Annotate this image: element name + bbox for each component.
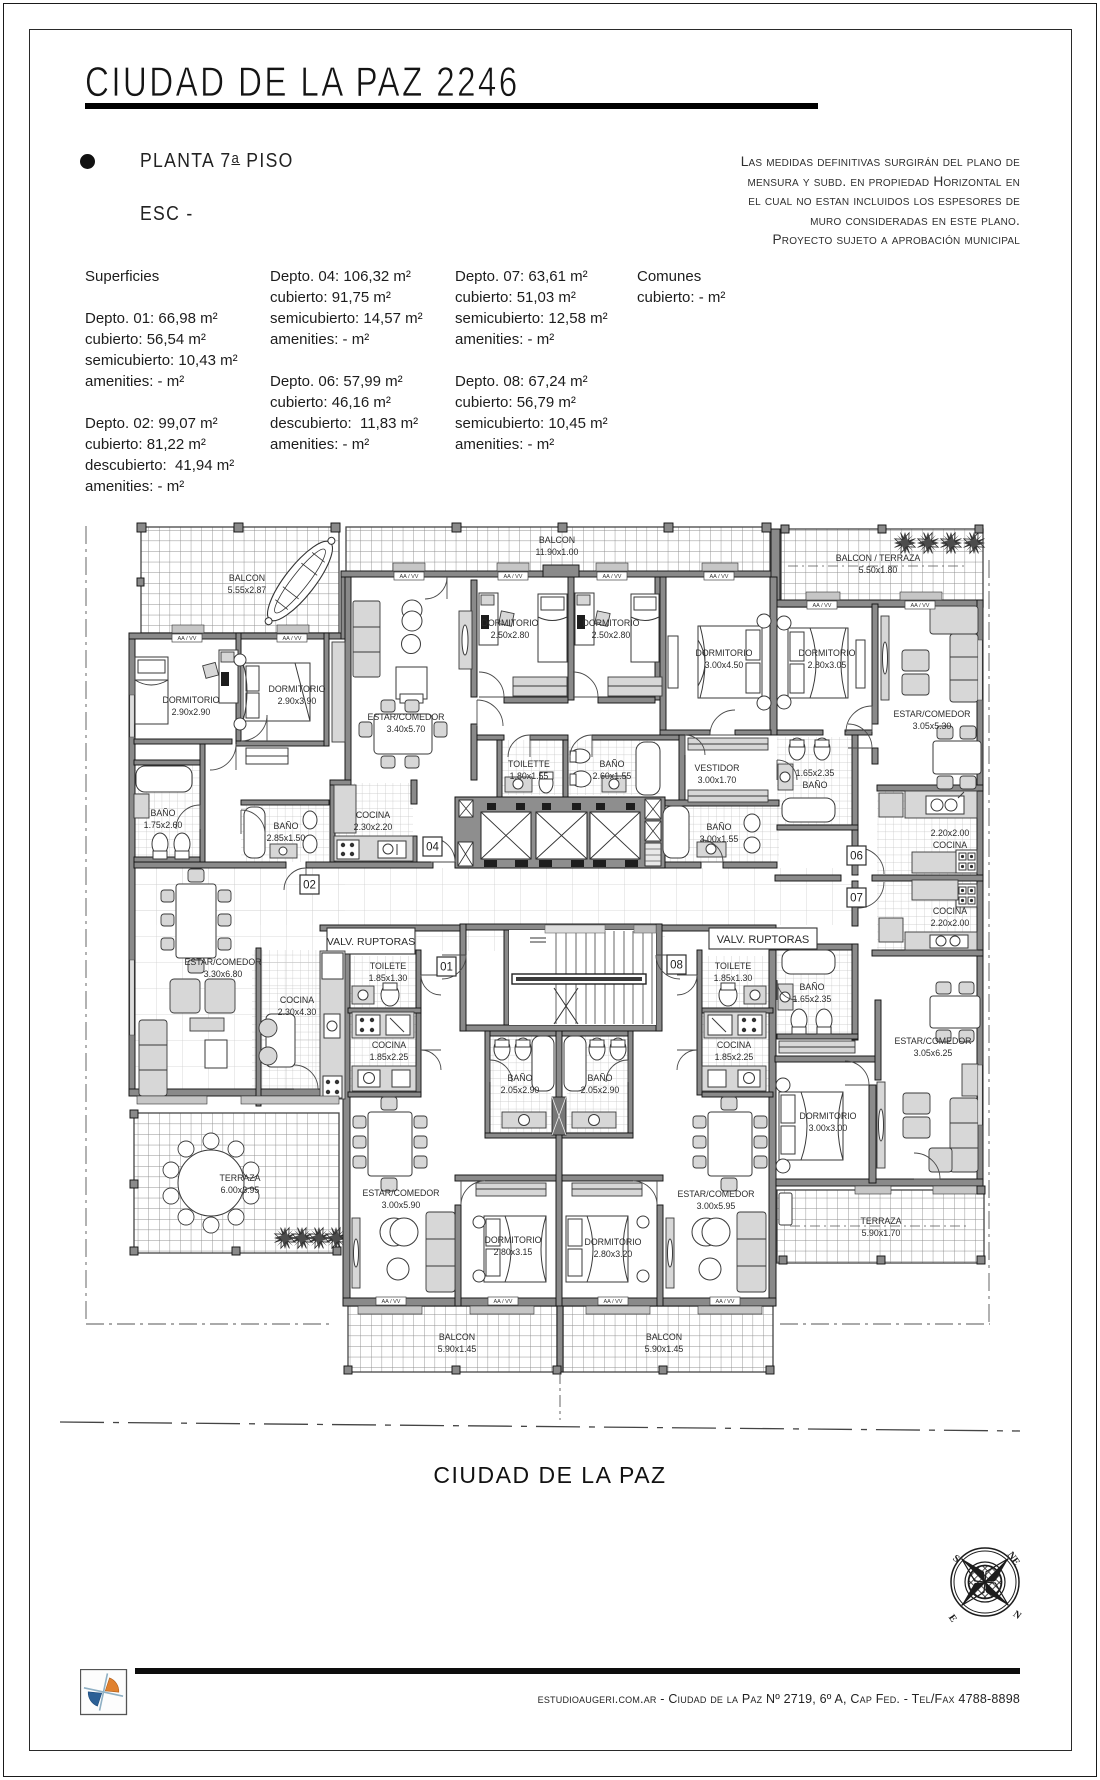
svg-text:E: E [946,1613,959,1625]
svg-text:N: N [1011,1609,1024,1623]
svg-text:NE: NE [1005,1550,1022,1568]
